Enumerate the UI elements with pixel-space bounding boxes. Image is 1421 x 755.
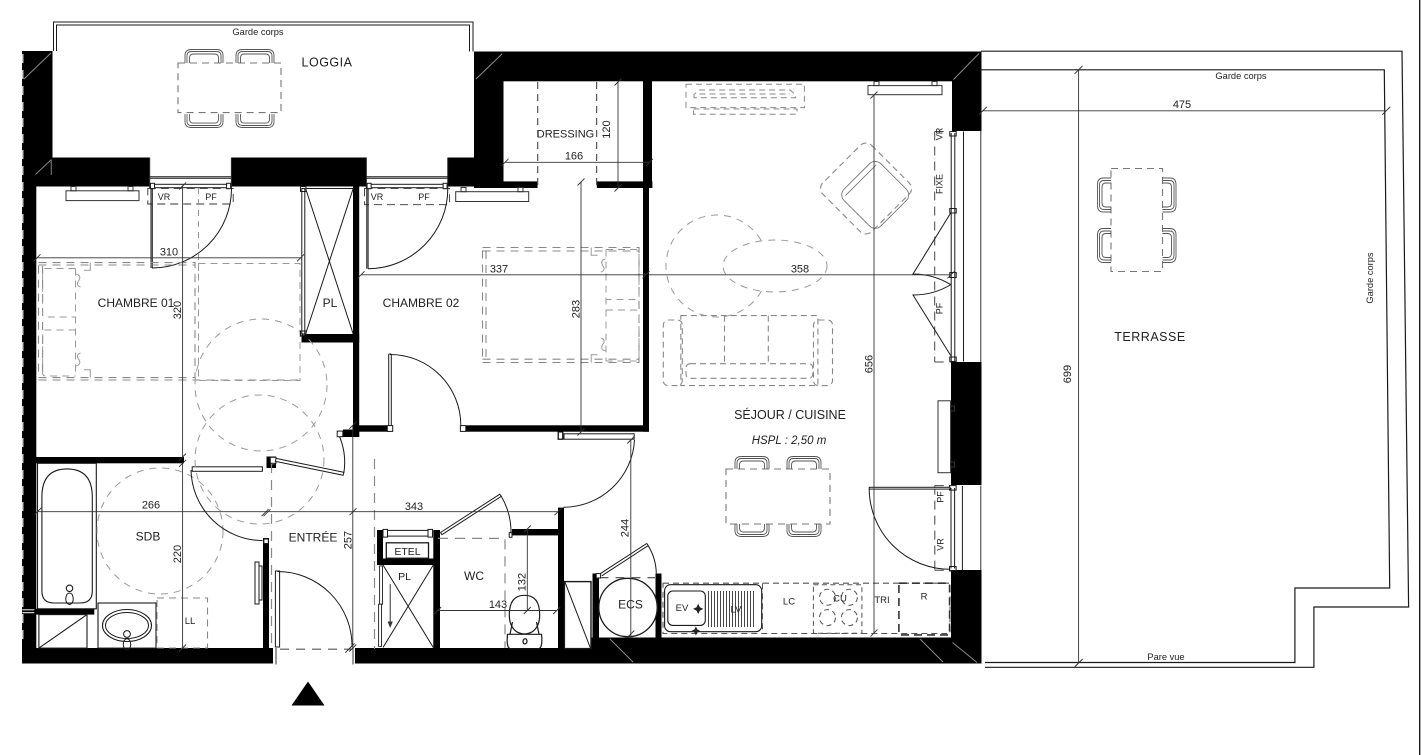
svg-text:337: 337 xyxy=(490,263,508,275)
svg-text:CU: CU xyxy=(833,594,847,605)
svg-text:320: 320 xyxy=(172,301,184,319)
svg-text:TRI: TRI xyxy=(874,595,889,606)
svg-text:699: 699 xyxy=(1062,365,1074,383)
svg-text:244: 244 xyxy=(620,519,632,537)
svg-text:LC: LC xyxy=(783,597,795,608)
svg-text:PF: PF xyxy=(935,302,945,314)
svg-text:HSPL : 2,50 m: HSPL : 2,50 m xyxy=(752,435,827,447)
svg-text:CHAMBRE 02: CHAMBRE 02 xyxy=(383,296,460,310)
svg-text:WC: WC xyxy=(464,569,484,583)
svg-text:VR: VR xyxy=(935,127,945,140)
svg-text:220: 220 xyxy=(172,545,184,563)
svg-text:257: 257 xyxy=(343,531,355,549)
svg-text:LL: LL xyxy=(185,616,196,627)
svg-text:PF: PF xyxy=(936,491,946,503)
svg-text:EV: EV xyxy=(676,603,689,614)
svg-text:R: R xyxy=(921,592,928,603)
svg-text:656: 656 xyxy=(864,355,876,373)
svg-text:475: 475 xyxy=(1173,99,1191,111)
svg-text:ENTRÉE: ENTRÉE xyxy=(289,530,338,545)
svg-text:283: 283 xyxy=(571,300,583,318)
svg-text:PF: PF xyxy=(418,192,430,202)
svg-text:166: 166 xyxy=(565,151,583,163)
svg-text:PF: PF xyxy=(205,192,217,202)
svg-text:PL: PL xyxy=(323,296,338,310)
svg-text:DRESSING: DRESSING xyxy=(537,129,594,141)
svg-text:358: 358 xyxy=(791,263,809,275)
svg-text:343: 343 xyxy=(405,501,423,513)
svg-text:266: 266 xyxy=(142,500,160,512)
svg-text:PL: PL xyxy=(398,571,411,583)
svg-text:FIXE: FIXE xyxy=(935,174,945,194)
svg-text:LOGGIA: LOGGIA xyxy=(302,56,353,70)
svg-text:310: 310 xyxy=(160,246,178,258)
svg-text:SDB: SDB xyxy=(136,530,161,544)
svg-text:132: 132 xyxy=(517,573,529,591)
svg-text:VR: VR xyxy=(158,192,171,202)
svg-text:Garde corps: Garde corps xyxy=(232,27,284,37)
svg-text:Garde corps: Garde corps xyxy=(1365,252,1375,304)
svg-text:TERRASSE: TERRASSE xyxy=(1114,330,1185,344)
svg-text:120: 120 xyxy=(601,120,613,138)
svg-text:Pare vue: Pare vue xyxy=(1147,652,1184,662)
svg-text:ETEL: ETEL xyxy=(394,546,420,558)
svg-text:Garde corps: Garde corps xyxy=(1215,71,1267,81)
svg-text:143: 143 xyxy=(489,599,507,611)
svg-text:SÉJOUR / CUISINE: SÉJOUR / CUISINE xyxy=(734,407,846,422)
svg-text:CHAMBRE 01: CHAMBRE 01 xyxy=(98,296,175,310)
svg-text:LV: LV xyxy=(731,605,743,616)
svg-text:VR: VR xyxy=(371,192,384,202)
svg-text:VR: VR xyxy=(936,538,946,551)
